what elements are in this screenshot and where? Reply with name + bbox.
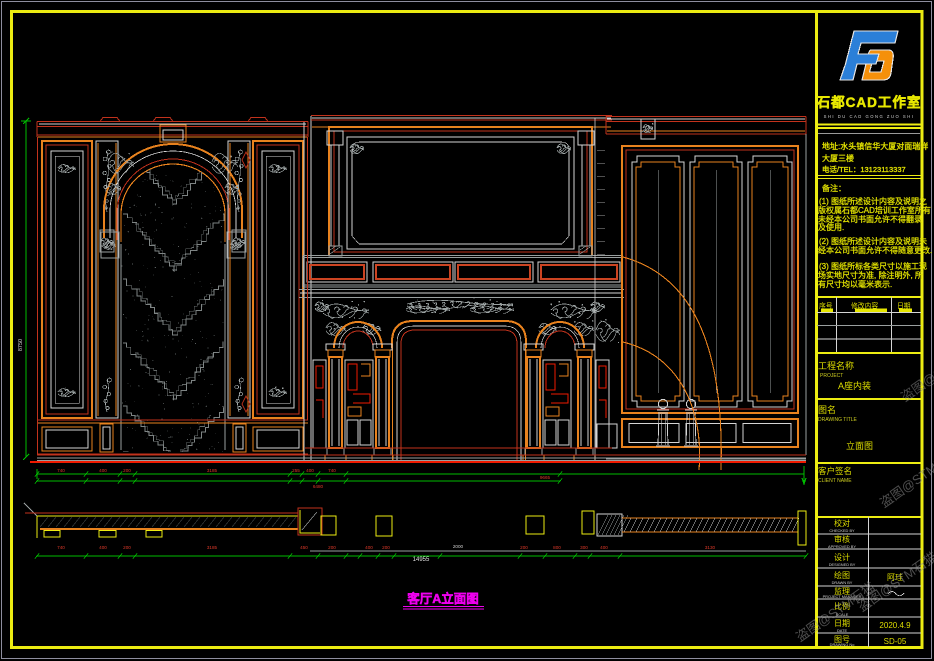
svg-text:CLIENT NAME: CLIENT NAME <box>818 478 852 484</box>
svg-text:绘图: 绘图 <box>834 570 850 580</box>
svg-text:800: 800 <box>553 545 561 550</box>
svg-text:SHI DU CAD GONG ZUO SHI: SHI DU CAD GONG ZUO SHI <box>824 114 915 119</box>
svg-text:400: 400 <box>306 468 314 473</box>
svg-text:(3) 图纸所标各类尺寸以施工现: (3) 图纸所标各类尺寸以施工现 <box>819 261 927 271</box>
svg-text:3185: 3185 <box>207 468 218 473</box>
svg-text:工程名称: 工程名称 <box>818 360 854 371</box>
svg-text:200: 200 <box>382 545 390 550</box>
svg-text:DESIGNED BY: DESIGNED BY <box>829 562 856 567</box>
svg-text:地址:水头镇信华大厦对面瑞祥: 地址:水头镇信华大厦对面瑞祥 <box>822 141 928 151</box>
svg-text:有尺寸均以毫米表示.: 有尺寸均以毫米表示. <box>818 279 892 289</box>
svg-text:200: 200 <box>328 545 336 550</box>
svg-text:6480: 6480 <box>313 484 324 489</box>
svg-text:备注：: 备注： <box>822 183 846 193</box>
svg-text:DRAWING TITLE: DRAWING TITLE <box>818 417 858 423</box>
svg-text:A座内装: A座内装 <box>838 380 871 391</box>
svg-text:400: 400 <box>99 468 107 473</box>
svg-text:400: 400 <box>365 545 373 550</box>
svg-text:DRAWN BY: DRAWN BY <box>832 580 853 585</box>
svg-text:客厅A立面图: 客厅A立面图 <box>406 591 479 606</box>
svg-text:设计: 设计 <box>834 552 850 562</box>
svg-text:场实地尺寸为准, 除注明外, 所: 场实地尺寸为准, 除注明外, 所 <box>818 270 923 280</box>
svg-text:740: 740 <box>328 468 336 473</box>
svg-text:PROJECT: PROJECT <box>820 373 843 379</box>
svg-text:8750: 8750 <box>18 339 24 351</box>
svg-text:经本公司书面允许不得随意更改.: 经本公司书面允许不得随意更改. <box>818 245 932 255</box>
svg-text:校对: 校对 <box>834 518 850 528</box>
svg-text:200: 200 <box>123 545 131 550</box>
svg-text:SD-05: SD-05 <box>884 637 907 646</box>
svg-text:CHECKED BY: CHECKED BY <box>829 528 855 533</box>
svg-text:3130: 3130 <box>705 545 716 550</box>
svg-text:200: 200 <box>520 545 528 550</box>
svg-text:14955: 14955 <box>413 557 430 563</box>
svg-text:审核: 审核 <box>834 534 850 544</box>
svg-text:3185: 3185 <box>207 545 218 550</box>
svg-text:740: 740 <box>57 545 65 550</box>
svg-text:400: 400 <box>99 545 107 550</box>
svg-text:图名: 图名 <box>818 404 836 415</box>
svg-text:立面图: 立面图 <box>846 440 873 451</box>
svg-text:2000: 2000 <box>453 544 464 549</box>
svg-text:DRAWING No: DRAWING No <box>830 642 855 647</box>
svg-text:及使用.: 及使用. <box>818 222 844 232</box>
svg-text:400: 400 <box>600 545 608 550</box>
svg-text:450: 450 <box>300 545 308 550</box>
svg-text:(2) 图纸所述设计内容及说明未: (2) 图纸所述设计内容及说明未 <box>819 236 927 246</box>
svg-text:740: 740 <box>57 468 65 473</box>
svg-text:300: 300 <box>580 545 588 550</box>
svg-text:200: 200 <box>123 468 131 473</box>
svg-text:版权属石都CAD培训工作室所有: 版权属石都CAD培训工作室所有 <box>818 205 931 215</box>
svg-text:APPROVED BY: APPROVED BY <box>828 544 856 549</box>
svg-text:大厦三楼: 大厦三楼 <box>822 153 854 163</box>
svg-text:255: 255 <box>292 468 300 473</box>
svg-text:(1) 图纸所述设计内容及说明之: (1) 图纸所述设计内容及说明之 <box>819 196 927 206</box>
svg-text:电话/TEL：13123113337: 电话/TEL：13123113337 <box>822 164 906 174</box>
svg-text:石都CAD工作室: 石都CAD工作室 <box>816 94 922 110</box>
svg-text:9665: 9665 <box>540 475 551 480</box>
svg-text:客户签名: 客户签名 <box>818 466 852 476</box>
svg-text:DATE: DATE <box>837 628 847 633</box>
svg-text:日期: 日期 <box>834 619 850 628</box>
svg-text:2020.4.9: 2020.4.9 <box>879 621 911 630</box>
